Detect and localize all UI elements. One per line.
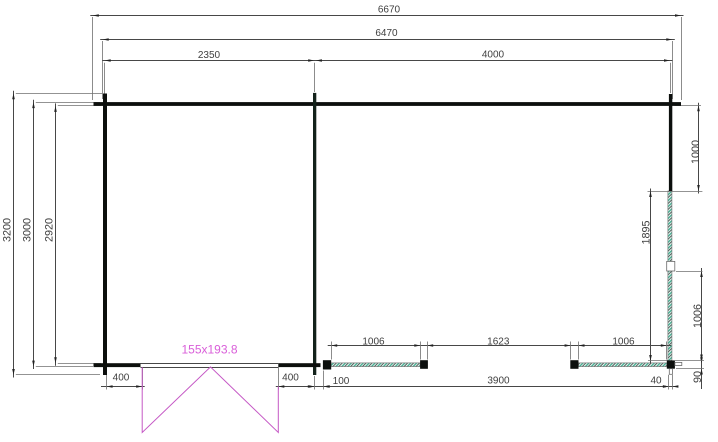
svg-text:400: 400 [282, 372, 299, 383]
svg-text:2920: 2920 [44, 218, 56, 242]
svg-text:3900: 3900 [487, 375, 510, 386]
svg-text:1895: 1895 [641, 220, 653, 244]
svg-text:40: 40 [650, 375, 662, 386]
svg-text:1006: 1006 [612, 336, 635, 347]
svg-text:6470: 6470 [375, 28, 398, 39]
svg-text:1623: 1623 [487, 336, 510, 347]
svg-text:155x193.8: 155x193.8 [181, 343, 237, 357]
svg-text:3000: 3000 [22, 218, 34, 242]
svg-text:1000: 1000 [690, 140, 702, 164]
svg-text:90: 90 [692, 371, 704, 383]
svg-text:2350: 2350 [198, 50, 221, 61]
svg-text:100: 100 [333, 376, 350, 387]
svg-text:3200: 3200 [2, 218, 14, 242]
svg-text:4000: 4000 [482, 49, 505, 60]
svg-text:1006: 1006 [362, 336, 385, 347]
svg-text:1006: 1006 [692, 304, 704, 328]
svg-text:6670: 6670 [378, 5, 401, 16]
svg-text:400: 400 [113, 372, 130, 383]
